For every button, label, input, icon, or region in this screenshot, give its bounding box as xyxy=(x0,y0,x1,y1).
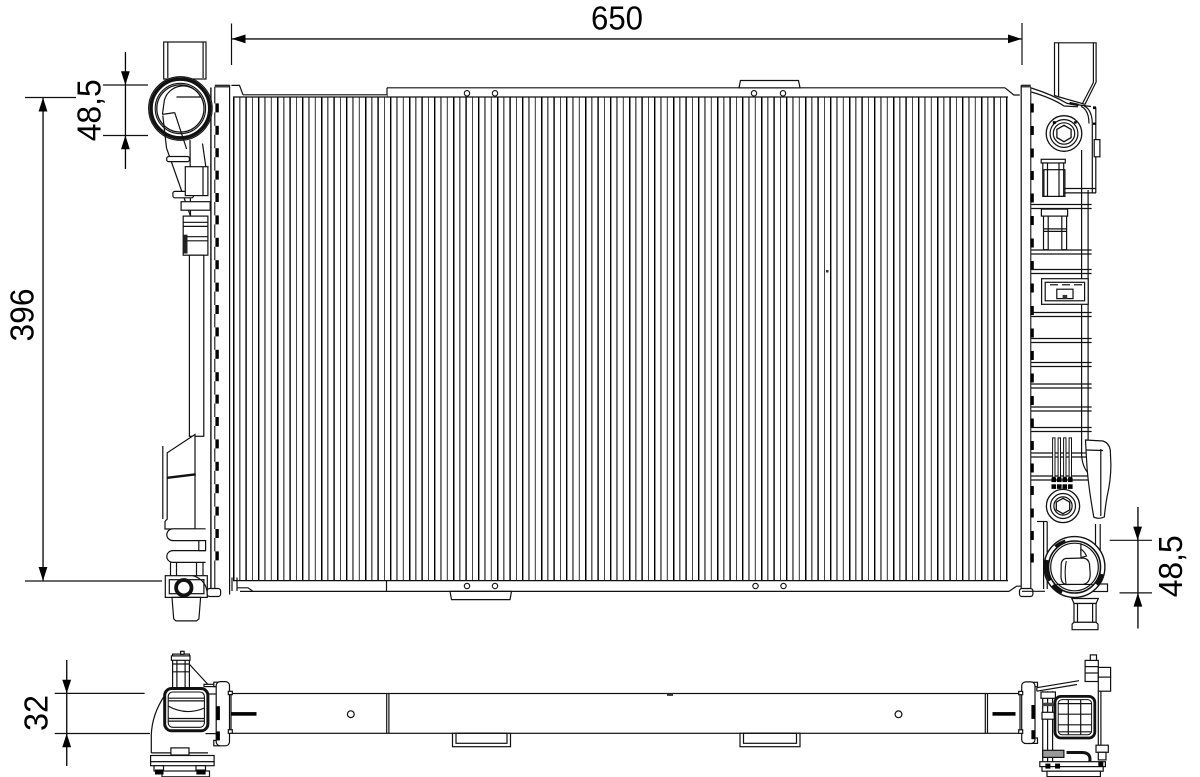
svg-text:48,5: 48,5 xyxy=(71,79,108,141)
svg-text:396: 396 xyxy=(4,289,41,342)
svg-text:650: 650 xyxy=(591,0,643,37)
svg-text:48,5: 48,5 xyxy=(1152,535,1189,597)
svg-text:32: 32 xyxy=(18,695,55,731)
